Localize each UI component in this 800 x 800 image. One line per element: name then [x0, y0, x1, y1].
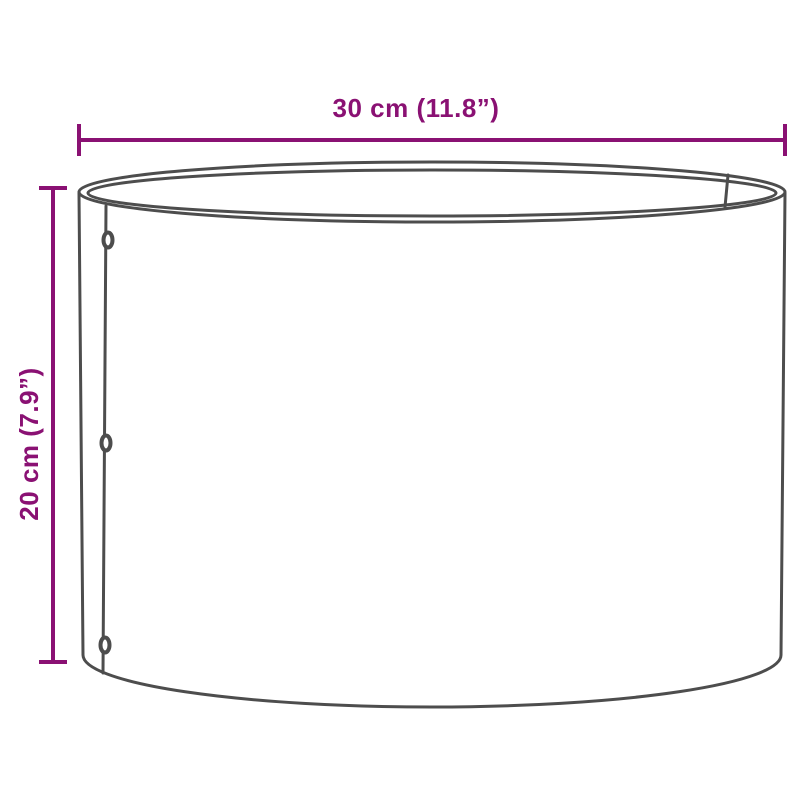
width-dimension: 30 cm (11.8”): [79, 93, 785, 156]
rivet-icon: [104, 233, 113, 248]
cylinder-drawing: [79, 162, 785, 707]
cylinder-top-rim-inner: [88, 170, 776, 216]
cylinder-body-silhouette: [79, 193, 785, 707]
width-dimension-label: 30 cm (11.8”): [333, 93, 500, 123]
rivet-icon: [102, 436, 111, 451]
height-dimension: 20 cm (7.9”): [14, 188, 67, 662]
diagram-canvas: 30 cm (11.8”) 20 cm (7.9”): [0, 0, 800, 800]
height-dimension-label: 20 cm (7.9”): [14, 367, 44, 520]
rivet-icon: [101, 638, 110, 653]
width-dimension-lines: [79, 124, 785, 156]
product-dimension-diagram: 30 cm (11.8”) 20 cm (7.9”): [0, 0, 800, 800]
